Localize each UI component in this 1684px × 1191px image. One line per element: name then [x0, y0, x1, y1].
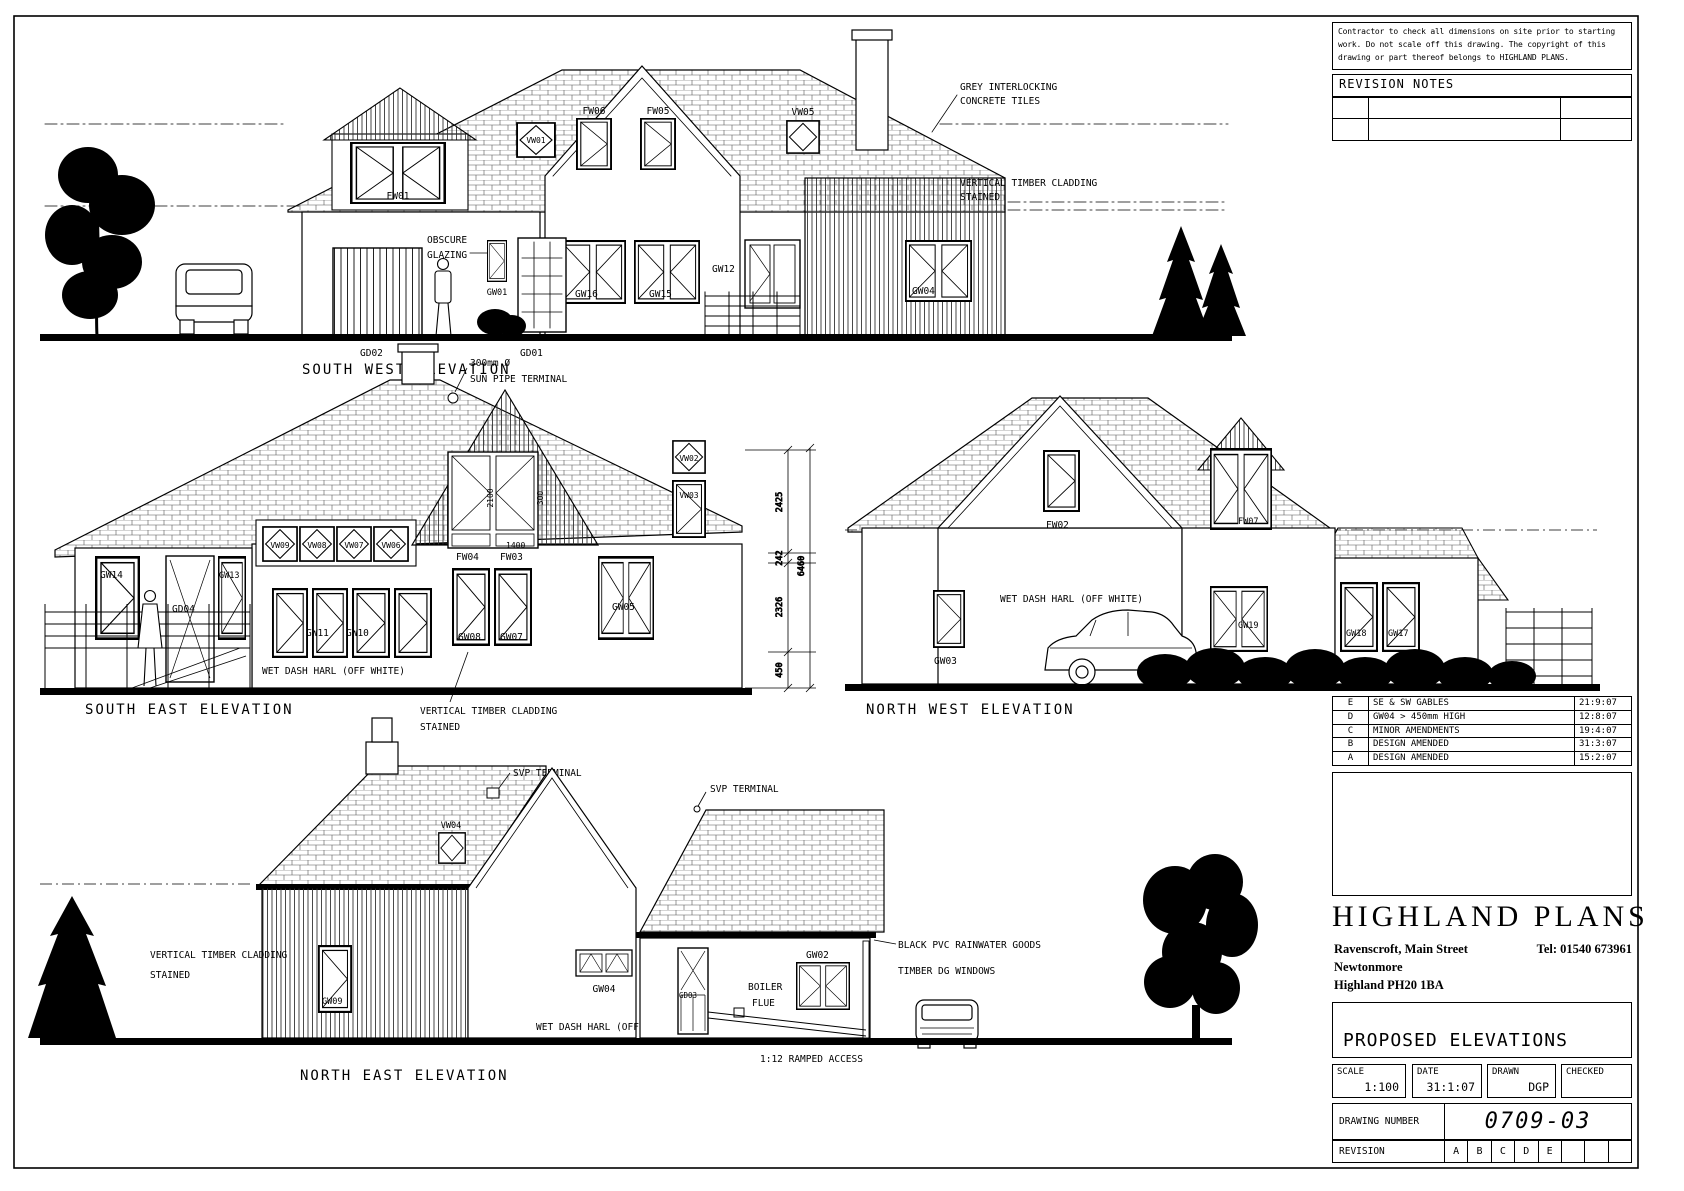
drawing-number-label: DRAWING NUMBER [1333, 1104, 1445, 1139]
se-window-row-1 [273, 589, 307, 657]
revision-note: DESIGN AMENDED [1369, 738, 1575, 752]
revision-cell-empty [1585, 1141, 1608, 1162]
revision-code: B [1333, 738, 1369, 752]
se-note-sun-1: 300mm Ø [470, 358, 510, 369]
ne-note-clad-2: STAINED [150, 970, 190, 981]
ne-downpipe [863, 941, 869, 1038]
sw-label-gw12: GW12 [712, 264, 735, 275]
se-label-gw11: GW11 [306, 628, 329, 639]
revision-cell-c: C [1492, 1141, 1515, 1162]
revision-date: 21:9:07 [1575, 697, 1631, 711]
nw-label-gw19: GW19 [1238, 621, 1258, 631]
se-label-vw09: VW09 [270, 541, 289, 550]
nw-label-gw03: GW03 [934, 656, 957, 667]
sw-label-fw01: FW01 [387, 191, 410, 202]
ne-title: NORTH EAST ELEVATION [300, 1068, 509, 1084]
revision-strip-label: REVISION [1333, 1141, 1445, 1162]
disclaimer-line-2: work. Do not scale off this drawing. The… [1338, 39, 1626, 52]
ne-label-gw02: GW02 [806, 950, 829, 961]
revision-table: E SE & SW GABLES 21:9:07 D GW04 > 450mm … [1332, 696, 1632, 766]
nw-left-wall [862, 528, 940, 684]
nw-window-fw02 [1044, 451, 1079, 511]
revision-date: 15:2:07 [1575, 752, 1631, 765]
se-dim-2425: 2425 [775, 492, 785, 512]
sw-note-clad-1: VERTICAL TIMBER CLADDING [960, 178, 1098, 189]
sw-label-fw06: FW06 [583, 106, 606, 117]
revision-cell-b: B [1468, 1141, 1491, 1162]
ne-note-clad-1: VERTICAL TIMBER CLADDING [150, 950, 288, 961]
sw-door-gd01 [518, 238, 566, 332]
drawing-number-value: 0709-03 [1445, 1104, 1631, 1139]
ne-svp2-terminal [694, 806, 700, 812]
sw-note-tiles-2: CONCRETE TILES [960, 96, 1040, 107]
sw-window-fw05 [641, 119, 675, 169]
sw-label-vw05: VW05 [792, 107, 815, 118]
sw-note-tiles-1: GREY INTERLOCKING [960, 82, 1058, 93]
empty-cell [1561, 98, 1631, 119]
se-window-gw11 [313, 589, 347, 657]
disclaimer-box: Contractor to check all dimensions on si… [1332, 22, 1632, 70]
se-label-gw14: GW14 [100, 570, 123, 581]
se-note-clad-1: VERTICAL TIMBER CLADDING [420, 706, 558, 717]
ne-note-svp2: SVP TERMINAL [710, 784, 779, 795]
revision-date: 12:8:07 [1575, 711, 1631, 725]
sw-label-gw04: GW04 [912, 286, 935, 297]
sw-label-fw05: FW05 [647, 106, 670, 117]
scale-value: 1:100 [1364, 1080, 1399, 1094]
sw-window-fw06 [577, 119, 611, 169]
sw-window-vw05 [787, 121, 819, 153]
checked-label: CHECKED [1566, 1067, 1604, 1077]
drawn-value: DGP [1528, 1080, 1549, 1094]
se-note-clad-2: STAINED [420, 722, 460, 733]
sw-label-gw16: GW16 [575, 289, 598, 300]
scale-label: SCALE [1337, 1067, 1364, 1077]
revision-code: D [1333, 711, 1369, 725]
sw-label-gw01: GW01 [487, 288, 507, 298]
drawing-number-box: DRAWING NUMBER 0709-03 [1332, 1103, 1632, 1140]
sw-label-gd01: GD01 [520, 348, 543, 359]
ne-label-gw09: GW09 [322, 997, 342, 1007]
empty-cell [1333, 119, 1369, 140]
sw-label-gw15: GW15 [649, 289, 672, 300]
se-label-fw03: FW03 [500, 552, 523, 563]
date-box: DATE 31:1:07 [1412, 1064, 1482, 1098]
se-label-gw07: GW07 [500, 632, 523, 643]
ne-note-boiler-2: FLUE [752, 998, 775, 1009]
ne-window-gw04 [576, 950, 632, 976]
sw-chimney [852, 30, 892, 150]
revision-code: C [1333, 725, 1369, 739]
address-line-3: Highland PH20 1BA [1334, 976, 1632, 994]
revision-code: A [1333, 752, 1369, 765]
ne-label-gw04: GW04 [593, 984, 616, 995]
ne-right-gutter [634, 932, 876, 938]
revision-note: GW04 > 450mm HIGH [1369, 711, 1575, 725]
se-label-fw04: FW04 [456, 552, 479, 563]
revision-cell-d: D [1515, 1141, 1538, 1162]
se-window-gw13 [219, 557, 246, 638]
revision-notes-header: REVISION NOTES [1332, 74, 1632, 97]
ne-note-timber: TIMBER DG WINDOWS [898, 966, 996, 977]
company-address: Ravenscroft, Main Street Tel: 01540 6739… [1334, 940, 1632, 994]
se-label-2100: 2100 [486, 488, 495, 507]
disclaimer-line-1: Contractor to check all dimensions on si… [1338, 26, 1626, 39]
revision-cell-empty [1562, 1141, 1585, 1162]
nw-window-gw18 [1341, 583, 1377, 651]
ne-label-vw04: VW04 [441, 821, 461, 831]
se-label-vw06: VW06 [381, 541, 400, 550]
nw-title: NORTH WEST ELEVATION [866, 702, 1075, 718]
se-label-gw05: GW05 [612, 602, 635, 613]
nw-window-gw19 [1211, 587, 1267, 651]
se-label-vw03: VW03 [679, 491, 698, 500]
nw-note-harl: WET DASH HARL (OFF WHITE) [1000, 594, 1143, 605]
revision-cell-e: E [1539, 1141, 1562, 1162]
telephone: Tel: 01540 673961 [1537, 940, 1632, 958]
revision-strip: REVISION A B C D E [1332, 1140, 1632, 1163]
revision-note: MINOR AMENDMENTS [1369, 725, 1575, 739]
se-window-row-4 [395, 589, 431, 657]
se-dim-6460: 6460 [797, 556, 807, 576]
sw-label-gd02: GD02 [360, 348, 383, 359]
ne-note-ramp: 1:12 RAMPED ACCESS [760, 1054, 863, 1065]
se-label-gw13: GW13 [219, 571, 239, 581]
se-title: SOUTH EAST ELEVATION [85, 702, 294, 718]
revision-note: SE & SW GABLES [1369, 697, 1575, 711]
sw-window-gw01 [488, 241, 507, 282]
revision-note: DESIGN AMENDED [1369, 752, 1575, 765]
ne-note-boiler-1: BOILER [748, 982, 783, 993]
address-line-2: Newtonmore [1334, 958, 1632, 976]
se-label-gd04: GD04 [172, 604, 195, 615]
empty-cell [1333, 98, 1369, 119]
se-dim-242: 242 [775, 550, 785, 565]
drawn-box: DRAWN DGP [1487, 1064, 1556, 1098]
revision-code: E [1333, 697, 1369, 711]
drawn-label: DRAWN [1492, 1067, 1519, 1077]
sw-ground-line [40, 334, 1232, 341]
se-ground-line [40, 688, 752, 695]
ne-label-gd03: GD03 [679, 991, 697, 1000]
nw-ground-line [845, 684, 1600, 691]
ne-clad-wall [262, 888, 468, 1038]
nw-label-fw02: FW02 [1046, 520, 1069, 531]
se-sun-pipe [448, 393, 458, 403]
sw-garage-door-gd02 [333, 248, 422, 336]
se-label-vw02: VW02 [679, 454, 698, 463]
ne-ground-line [40, 1038, 1232, 1045]
nw-window-gw03 [934, 591, 964, 647]
sw-label-vw01: VW01 [526, 136, 545, 145]
revision-cell-a: A [1445, 1141, 1468, 1162]
empty-cell [1369, 119, 1561, 140]
se-window-gw10 [353, 589, 389, 657]
se-note-sun-2: SUN PIPE TERMINAL [470, 374, 568, 385]
se-label-vw08: VW08 [307, 541, 326, 550]
scale-box: SCALE 1:100 [1332, 1064, 1406, 1098]
se-window-vw03 [673, 481, 705, 537]
drawing-title-box: PROPOSED ELEVATIONS [1332, 1002, 1632, 1058]
se-label-300: 300 [536, 491, 545, 506]
se-window-gw05 [599, 557, 654, 638]
nw-window-gw17 [1383, 583, 1419, 651]
ne-window-gw02 [797, 963, 850, 1009]
se-label-gw10: GW10 [346, 628, 369, 639]
checked-box: CHECKED [1561, 1064, 1632, 1098]
revision-date: 19:4:07 [1575, 725, 1631, 739]
address-line-1: Ravenscroft, Main Street [1334, 940, 1468, 958]
se-label-vw07: VW07 [344, 541, 363, 550]
se-label-1400: 1400 [506, 541, 525, 550]
date-value: 31:1:07 [1427, 1080, 1475, 1094]
ne-svp1-terminal [487, 788, 499, 798]
revision-cell-empty [1609, 1141, 1631, 1162]
sw-note-obscure-1: OBSCURE [427, 235, 467, 246]
revision-date: 31:3:07 [1575, 738, 1631, 752]
nw-label-gw18: GW18 [1346, 629, 1366, 639]
empty-cell [1369, 98, 1561, 119]
logo-empty-box [1332, 772, 1632, 896]
sw-note-obscure-2: GLAZING [427, 250, 467, 261]
revision-notes-empty-table [1332, 97, 1632, 141]
nw-label-fw07: FW07 [1238, 517, 1258, 527]
date-label: DATE [1417, 1067, 1439, 1077]
se-label-gw08: GW08 [458, 632, 481, 643]
se-note-harl: WET DASH HARL (OFF WHITE) [262, 666, 405, 677]
se-chimney [398, 344, 438, 384]
disclaimer-line-3: drawing or part thereof belongs to HIGHL… [1338, 52, 1626, 65]
ne-note-rainwater: BLACK PVC RAINWATER GOODS [898, 940, 1041, 951]
ne-window-vw04 [439, 833, 466, 863]
empty-cell [1561, 119, 1631, 140]
se-door-gd04 [166, 556, 214, 682]
se-dim-2326: 2326 [775, 597, 785, 617]
company-name: HIGHLAND PLANS [1332, 900, 1632, 934]
nw-label-gw17: GW17 [1388, 629, 1408, 639]
drawing-title: PROPOSED ELEVATIONS [1343, 1030, 1568, 1051]
sw-note-clad-2: STAINED [960, 192, 1000, 203]
se-dim-450: 450 [775, 662, 785, 677]
